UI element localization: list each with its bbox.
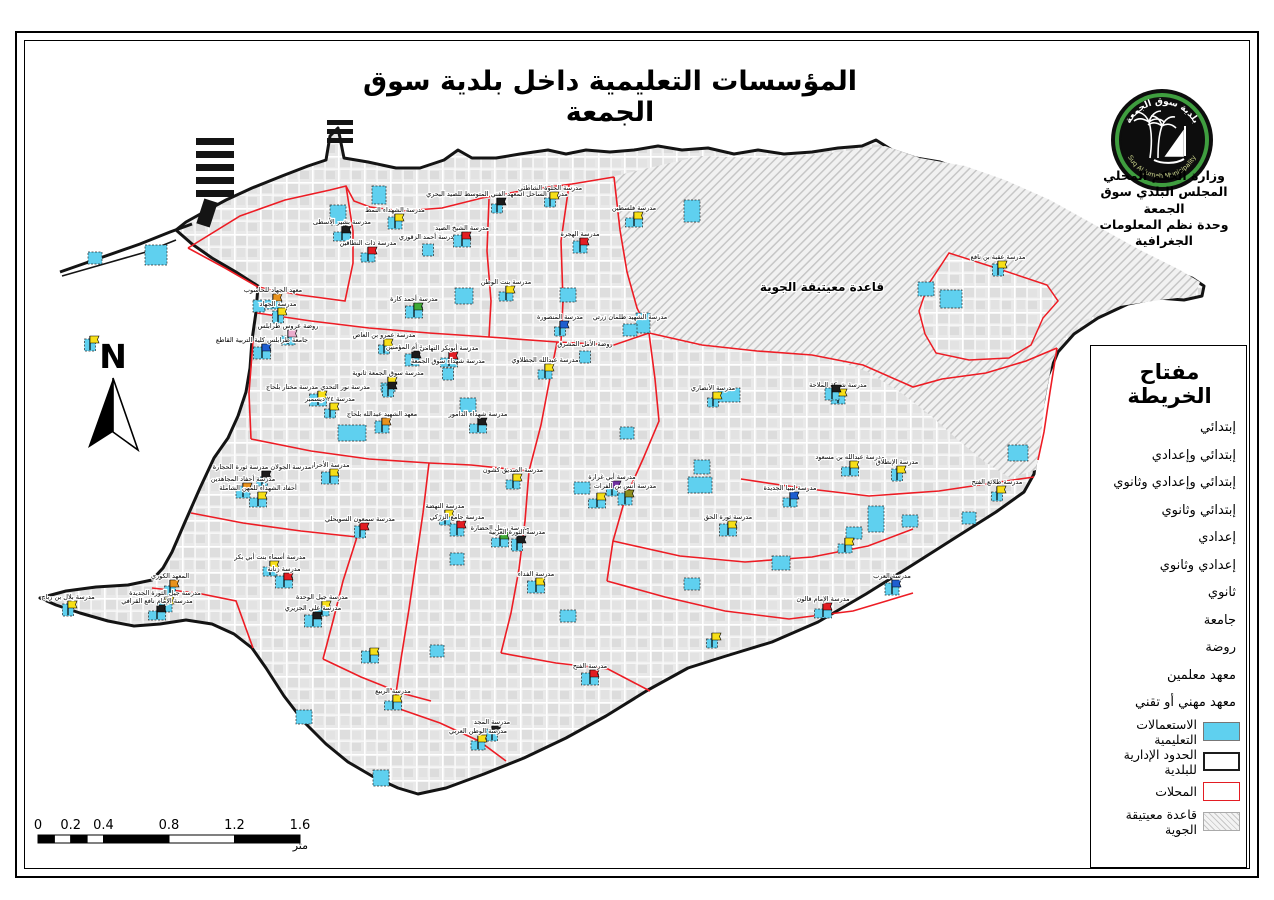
school-label: مدرسة الشيخ الصيد [435, 224, 489, 232]
school-label: معهد الشهيد عبدالله بلحاج [347, 410, 417, 418]
education-parcel [145, 245, 167, 265]
education-parcel [372, 186, 386, 204]
education-parcel [574, 482, 590, 494]
legend-item-school-type: جامعة [1091, 607, 1246, 635]
flag-icon [368, 247, 377, 254]
education-parcel [450, 553, 464, 565]
education-parcel [902, 515, 918, 527]
education-parcel [846, 527, 862, 539]
school-label: مدرسة النهضة [426, 502, 465, 510]
school-label: مدرسة الشهيد طلمان زرتي [593, 313, 667, 321]
school-label: مدرسة فلسطين [612, 204, 656, 212]
school-label: مدرسة الربيع [375, 687, 411, 695]
flag-icon [414, 303, 423, 310]
school-label: مدرسة أبوبكر التهامي [420, 343, 479, 352]
flag-icon [712, 633, 721, 640]
scalebar-tick-label: 0.2 [60, 818, 81, 833]
flag-icon [360, 523, 369, 530]
flag-icon [590, 670, 599, 677]
school-label: مدرسة ٢٤ ديسمبر [304, 395, 355, 403]
flag-icon [68, 601, 77, 608]
legend-item-area: المحلات [1091, 777, 1246, 807]
flag-icon [262, 344, 271, 351]
legend-swatch-red-icon [1203, 782, 1240, 801]
flag-icon [897, 466, 906, 473]
flag-icon [393, 695, 402, 702]
school-label: مدرسة أحمد كارة [390, 294, 438, 303]
school-label: مدرسة الحلوة الشاطئي [518, 184, 582, 192]
flag-icon [342, 226, 351, 233]
school-label: مدرسة الهجرة [561, 230, 600, 238]
flag-icon [597, 493, 606, 500]
legend-swatch-black-icon [1203, 752, 1240, 771]
flag-icon [330, 469, 339, 476]
flag-icon [728, 521, 737, 528]
svg-text:N: N [99, 337, 127, 376]
scalebar-tick-label: 0 [34, 818, 42, 833]
legend-item-school-type: روضة [1091, 634, 1246, 662]
airbase-label: قاعدة معيتيقة الجوية [760, 280, 884, 295]
school-label: مدرسة أبي غرارة [588, 472, 635, 481]
education-parcel [772, 556, 790, 570]
education-parcel [455, 288, 473, 304]
map-canvas: مدرسة الساحل المعهد الفني المتوسط للصيد … [0, 0, 1274, 900]
school-label: مدرسة ليبيا الجديدة [764, 484, 817, 492]
flag-icon [845, 538, 854, 545]
legend-school-types: إبتدائيإبتدائي وإعداديإبتدائي وإعدادي وث… [1091, 414, 1246, 717]
school-label: مدرسة سوق الجمعة ثانوية [352, 369, 424, 377]
flag-icon [258, 492, 267, 499]
flag-icon [478, 735, 487, 742]
flag-icon [850, 461, 859, 468]
school-label: مدرسة الفداء [518, 570, 554, 578]
school-label: مدرسة بلال بن رباح [41, 593, 94, 601]
flag-icon [713, 392, 722, 399]
school-label: مدرسة ثورة الحق [704, 513, 752, 521]
school-label: مدرسة عبدالله الجطلاوي [511, 356, 578, 364]
school-label: مدرسة بنت الوطن [481, 278, 532, 286]
legend-title: مفتاح الخريطة [1091, 346, 1246, 414]
page-title: المؤسسات التعليمية داخل بلدية سوق الجمعة [340, 66, 880, 128]
school-label: مدرسة علي الجزيري [285, 604, 342, 612]
school-label: مدرسة شهداء الدامور [448, 410, 508, 418]
education-parcel [88, 252, 102, 264]
legend-item-school-type: معهد مهني أو تقني [1091, 689, 1246, 717]
school-label: مدرسة شهداء سوق الجمعة [411, 357, 485, 365]
school-label: مدرسة أسماء بنت أبي بكر [233, 552, 305, 561]
flag-icon [330, 403, 339, 410]
flag-icon [170, 580, 179, 587]
education-parcel [373, 770, 389, 786]
legend-item-school-type: إبتدائي وإعدادي [1091, 442, 1246, 470]
flag-icon [478, 418, 487, 425]
flag-icon [550, 192, 559, 199]
school-label: مدرسة عبدالله بن مسعود [815, 453, 884, 461]
scalebar-tick-label: 1.6 [290, 818, 311, 833]
school-label: مدرسة عمرو بن العاص [352, 331, 415, 339]
school-label: روضة عروس طرابلس [258, 322, 319, 330]
legend-item-school-type: إبتدائي وثانوي [1091, 497, 1246, 525]
legend-area-label: قاعدة معيتيقة الجوية [1091, 807, 1197, 837]
school-label: مدرسة الإنطلاق [876, 458, 919, 466]
flag-icon [457, 521, 466, 528]
flag-icon [388, 382, 397, 389]
legend-item-school-type: إبتدائي [1091, 414, 1246, 442]
school-label: مدرسة نور التحدي مدرسة مختار بلحاج [266, 383, 370, 391]
flag-icon [517, 536, 526, 543]
legend-panel: مفتاح الخريطة إبتدائيإبتدائي وإعداديإبتد… [1090, 345, 1247, 868]
flag-icon [506, 286, 515, 293]
education-parcel [560, 288, 576, 302]
flag-icon [998, 261, 1007, 268]
org-line-ministry: وزارة الحكم المحلي [1080, 168, 1248, 184]
school-label: معهد الجهاد للحاسوب [244, 286, 302, 294]
education-parcel [962, 512, 976, 524]
school-label: مدرسة زنانة [267, 565, 300, 573]
school-label: جامعة طرابلس كلية التربية القاطع [216, 336, 308, 344]
flag-icon [545, 364, 554, 371]
flag-icon [790, 492, 799, 499]
education-parcel [918, 282, 934, 296]
legend-area-label: الحدود الإدارية للبلدية [1091, 747, 1197, 777]
education-parcel [560, 610, 576, 622]
scalebar-tick-label: 0.8 [159, 818, 180, 833]
flag-icon [284, 573, 293, 580]
school-label: روضة الأمل المشرق [557, 339, 612, 348]
education-parcel [868, 506, 884, 532]
flag-icon [513, 474, 522, 481]
education-parcel [940, 290, 962, 308]
school-label: مدرسة الثورة العربية [489, 528, 546, 536]
flag-icon [634, 212, 643, 219]
school-label: مدرسة سمعون السويحلي [325, 515, 395, 523]
legend-item-school-type: إعدادي وثانوي [1091, 552, 1246, 580]
legend-item-school-type: إبتدائي وإعدادي وثانوي [1091, 469, 1246, 497]
school-label: مدرسة العرب [873, 572, 911, 580]
legend-item-school-type: ثانوي [1091, 579, 1246, 607]
org-line-gis-unit: وحدة نظم المعلومات الجغرافية [1080, 217, 1248, 250]
school-label: مدرسة الإمام نافع القرافي [121, 597, 193, 605]
flag-icon [462, 232, 471, 239]
legend-item-school-type: إعدادي [1091, 524, 1246, 552]
education-parcel [688, 477, 712, 493]
organization-block: وزارة الحكم المحلي المجلس البلدي سوق الج… [1080, 168, 1248, 249]
flag-icon [382, 418, 391, 425]
school-label: مدرسة أحفاد المجاهدين [211, 474, 275, 483]
flag-icon [278, 308, 287, 315]
school-label: مدرسة الوطن العربي [449, 727, 507, 735]
school-label: مدرسة ذات النطاقين [340, 239, 397, 247]
scalebar-tick-label: 1.2 [224, 818, 245, 833]
education-parcel [684, 578, 700, 590]
map-layout-page: { "title": "المؤسسات التعليمية داخل بلدي… [0, 0, 1274, 900]
flag-icon [580, 238, 589, 245]
scalebar-tick-label: 0.4 [93, 818, 114, 833]
flag-icon [832, 385, 841, 392]
school-label: أحفاد الشهداء للمهن الشاملة [219, 483, 297, 492]
education-parcel [296, 710, 312, 724]
school-label: مدرسة جيل الثورة الجديدة [129, 589, 201, 597]
flag-icon [90, 336, 99, 343]
school-label: مدرسة جامع الزركي [429, 513, 484, 521]
school-label: مدرسة المنصورة [537, 313, 583, 321]
school-label: مدرسة عقبة بن نافع [971, 253, 1026, 261]
school-marker [85, 336, 100, 351]
legend-area-label: الاستعمالات التعليمية [1091, 717, 1197, 747]
school-label: المعهد الكوري [151, 572, 189, 580]
legend-item-school-type: معهد معلمين [1091, 662, 1246, 690]
scale-bar: 00.20.40.81.21.6متر [34, 818, 310, 852]
org-line-council: المجلس البلدي سوق الجمعة [1080, 184, 1248, 217]
school-label: مدرسة الفتح [573, 662, 607, 670]
school-label: مدرسة الإمام قالون [796, 595, 849, 603]
education-parcel [338, 425, 366, 441]
school-label: مدرسة بشير الأسطى [313, 217, 371, 226]
flag-icon [497, 198, 506, 205]
legend-item-area: الاستعمالات التعليمية [1091, 717, 1246, 747]
education-parcel [620, 427, 634, 439]
school-label: مدرسة الجولان مدرسة ثورة الحجارة [213, 463, 311, 471]
flag-icon [625, 490, 634, 497]
education-parcel [694, 460, 710, 474]
school-label: مدرسة الأحرار [309, 460, 349, 469]
school-label: مدرسة الجهاد [260, 300, 297, 308]
flag-icon [823, 603, 832, 610]
school-label: مدرسة الصديق كشون [483, 466, 543, 474]
legend-item-area: قاعدة معيتيقة الجوية [1091, 807, 1246, 837]
scalebar-unit: متر [292, 839, 308, 852]
legend-swatch-cyan-icon [1203, 722, 1240, 741]
flag-icon [395, 214, 404, 221]
flag-icon [313, 612, 322, 619]
school-label: مدرسة الأنصاري [691, 383, 735, 392]
legend-area-label: المحلات [1155, 784, 1197, 799]
legend-swatch-hatch-icon [1203, 812, 1240, 831]
education-parcel [684, 200, 700, 222]
school-label: مدرسة المجد [474, 718, 510, 726]
flag-icon [157, 605, 166, 612]
school-label: مدرسة طلائع الفتح [972, 478, 1023, 486]
legend-area-items: الاستعمالات التعليميةالحدود الإدارية للب… [1091, 717, 1246, 837]
education-parcel [1008, 445, 1028, 461]
flag-icon [536, 578, 545, 585]
flag-icon [560, 321, 569, 328]
flag-icon [370, 648, 379, 655]
school-label: مدرسة الشهداء النمط [365, 206, 425, 214]
school-label: مدرسة أنس بن الفرات [594, 481, 656, 490]
school-label: مدرسة جيل الوحدة [296, 593, 348, 601]
school-label: مدرسة أحمد الزقوزي [399, 232, 457, 241]
education-parcel [430, 645, 444, 657]
flag-icon [997, 486, 1006, 493]
flag-icon [892, 580, 901, 587]
north-arrow-icon: N [88, 337, 138, 450]
legend-item-area: الحدود الإدارية للبلدية [1091, 747, 1246, 777]
